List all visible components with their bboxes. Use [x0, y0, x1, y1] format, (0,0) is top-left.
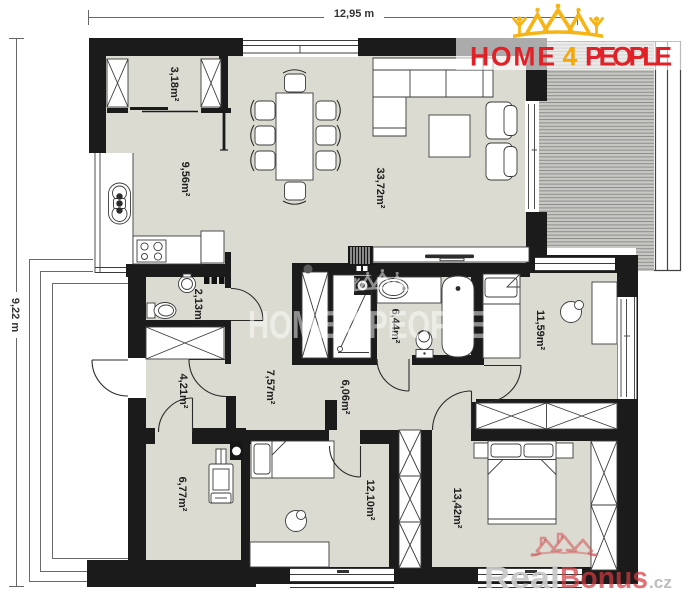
svg-text:6,77m²: 6,77m²	[176, 477, 188, 512]
svg-text:3,18m²: 3,18m²	[168, 67, 180, 102]
svg-text:9,56m²: 9,56m²	[179, 162, 191, 197]
svg-text:11,59m²: 11,59m²	[534, 310, 546, 351]
svg-text:12,95 m: 12,95 m	[334, 8, 375, 20]
svg-text:4: 4	[563, 42, 578, 72]
svg-text:Bonus: Bonus	[560, 560, 648, 595]
svg-text:HOME 4 PEOPLE: HOME 4 PEOPLE	[248, 304, 487, 347]
svg-text:4,21m²: 4,21m²	[177, 374, 189, 409]
svg-text:7,57m²: 7,57m²	[264, 370, 276, 405]
svg-text:HOME: HOME	[470, 42, 555, 72]
svg-text:Real: Real	[484, 560, 560, 595]
svg-text:12,10m²: 12,10m²	[364, 480, 376, 521]
svg-text:6,06m²: 6,06m²	[339, 380, 351, 415]
svg-text:9,22 m: 9,22 m	[9, 298, 21, 332]
svg-text:2,13m²: 2,13m²	[192, 289, 204, 324]
svg-text:.cz: .cz	[649, 573, 672, 592]
svg-text:13,42m²: 13,42m²	[451, 488, 463, 529]
svg-text:33,72m²: 33,72m²	[374, 168, 386, 209]
svg-text:PEOPLE: PEOPLE	[585, 42, 672, 72]
